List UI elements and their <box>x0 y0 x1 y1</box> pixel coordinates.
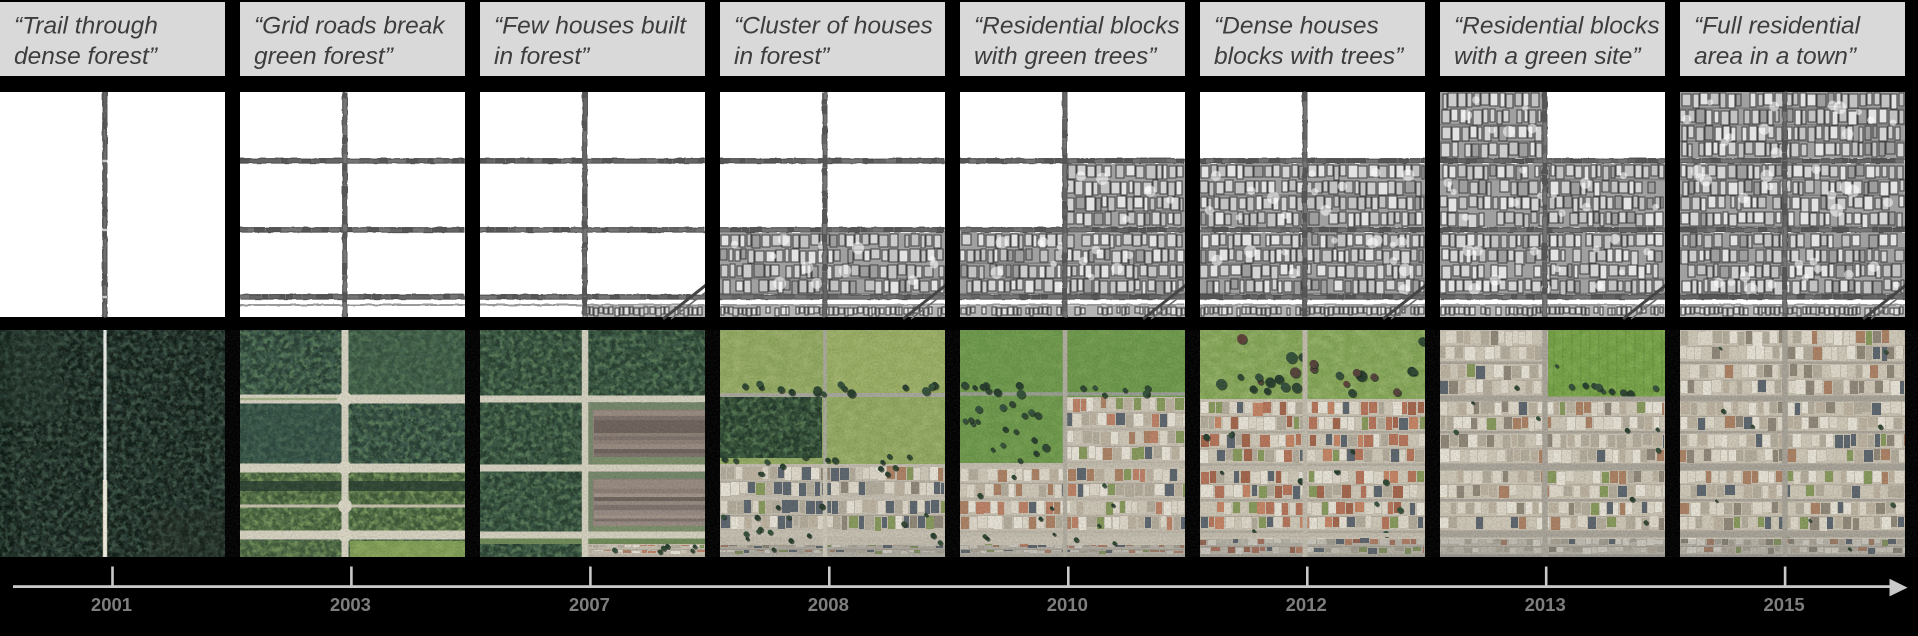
svg-text:2015: 2015 <box>1764 594 1805 615</box>
svg-text:“Residential blocks: “Residential blocks <box>974 13 1180 40</box>
svg-text:“Cluster of houses: “Cluster of houses <box>734 13 933 40</box>
svg-text:2007: 2007 <box>569 594 610 615</box>
svg-text:area in a town”: area in a town” <box>1694 43 1858 70</box>
svg-text:dense forest”: dense forest” <box>14 43 159 70</box>
svg-text:2013: 2013 <box>1525 594 1566 615</box>
svg-text:in forest”: in forest” <box>494 43 591 70</box>
svg-text:“Full residential: “Full residential <box>1694 13 1861 40</box>
svg-text:2003: 2003 <box>330 594 371 615</box>
svg-text:2008: 2008 <box>808 594 849 615</box>
svg-text:“Few houses built: “Few houses built <box>494 13 687 40</box>
svg-text:“Trail through: “Trail through <box>14 13 158 40</box>
svg-text:in forest”: in forest” <box>734 43 831 70</box>
svg-text:blocks with trees”: blocks with trees” <box>1214 43 1405 70</box>
svg-text:“Residential blocks: “Residential blocks <box>1454 13 1660 40</box>
svg-text:with a green site”: with a green site” <box>1454 43 1642 70</box>
svg-text:green forest”: green forest” <box>254 43 395 70</box>
svg-text:“Dense houses: “Dense houses <box>1214 13 1379 40</box>
svg-text:2010: 2010 <box>1047 594 1088 615</box>
svg-text:2012: 2012 <box>1286 594 1327 615</box>
svg-text:2001: 2001 <box>91 594 132 615</box>
svg-text:with green trees”: with green trees” <box>974 43 1158 70</box>
svg-text:“Grid roads break: “Grid roads break <box>254 13 446 40</box>
